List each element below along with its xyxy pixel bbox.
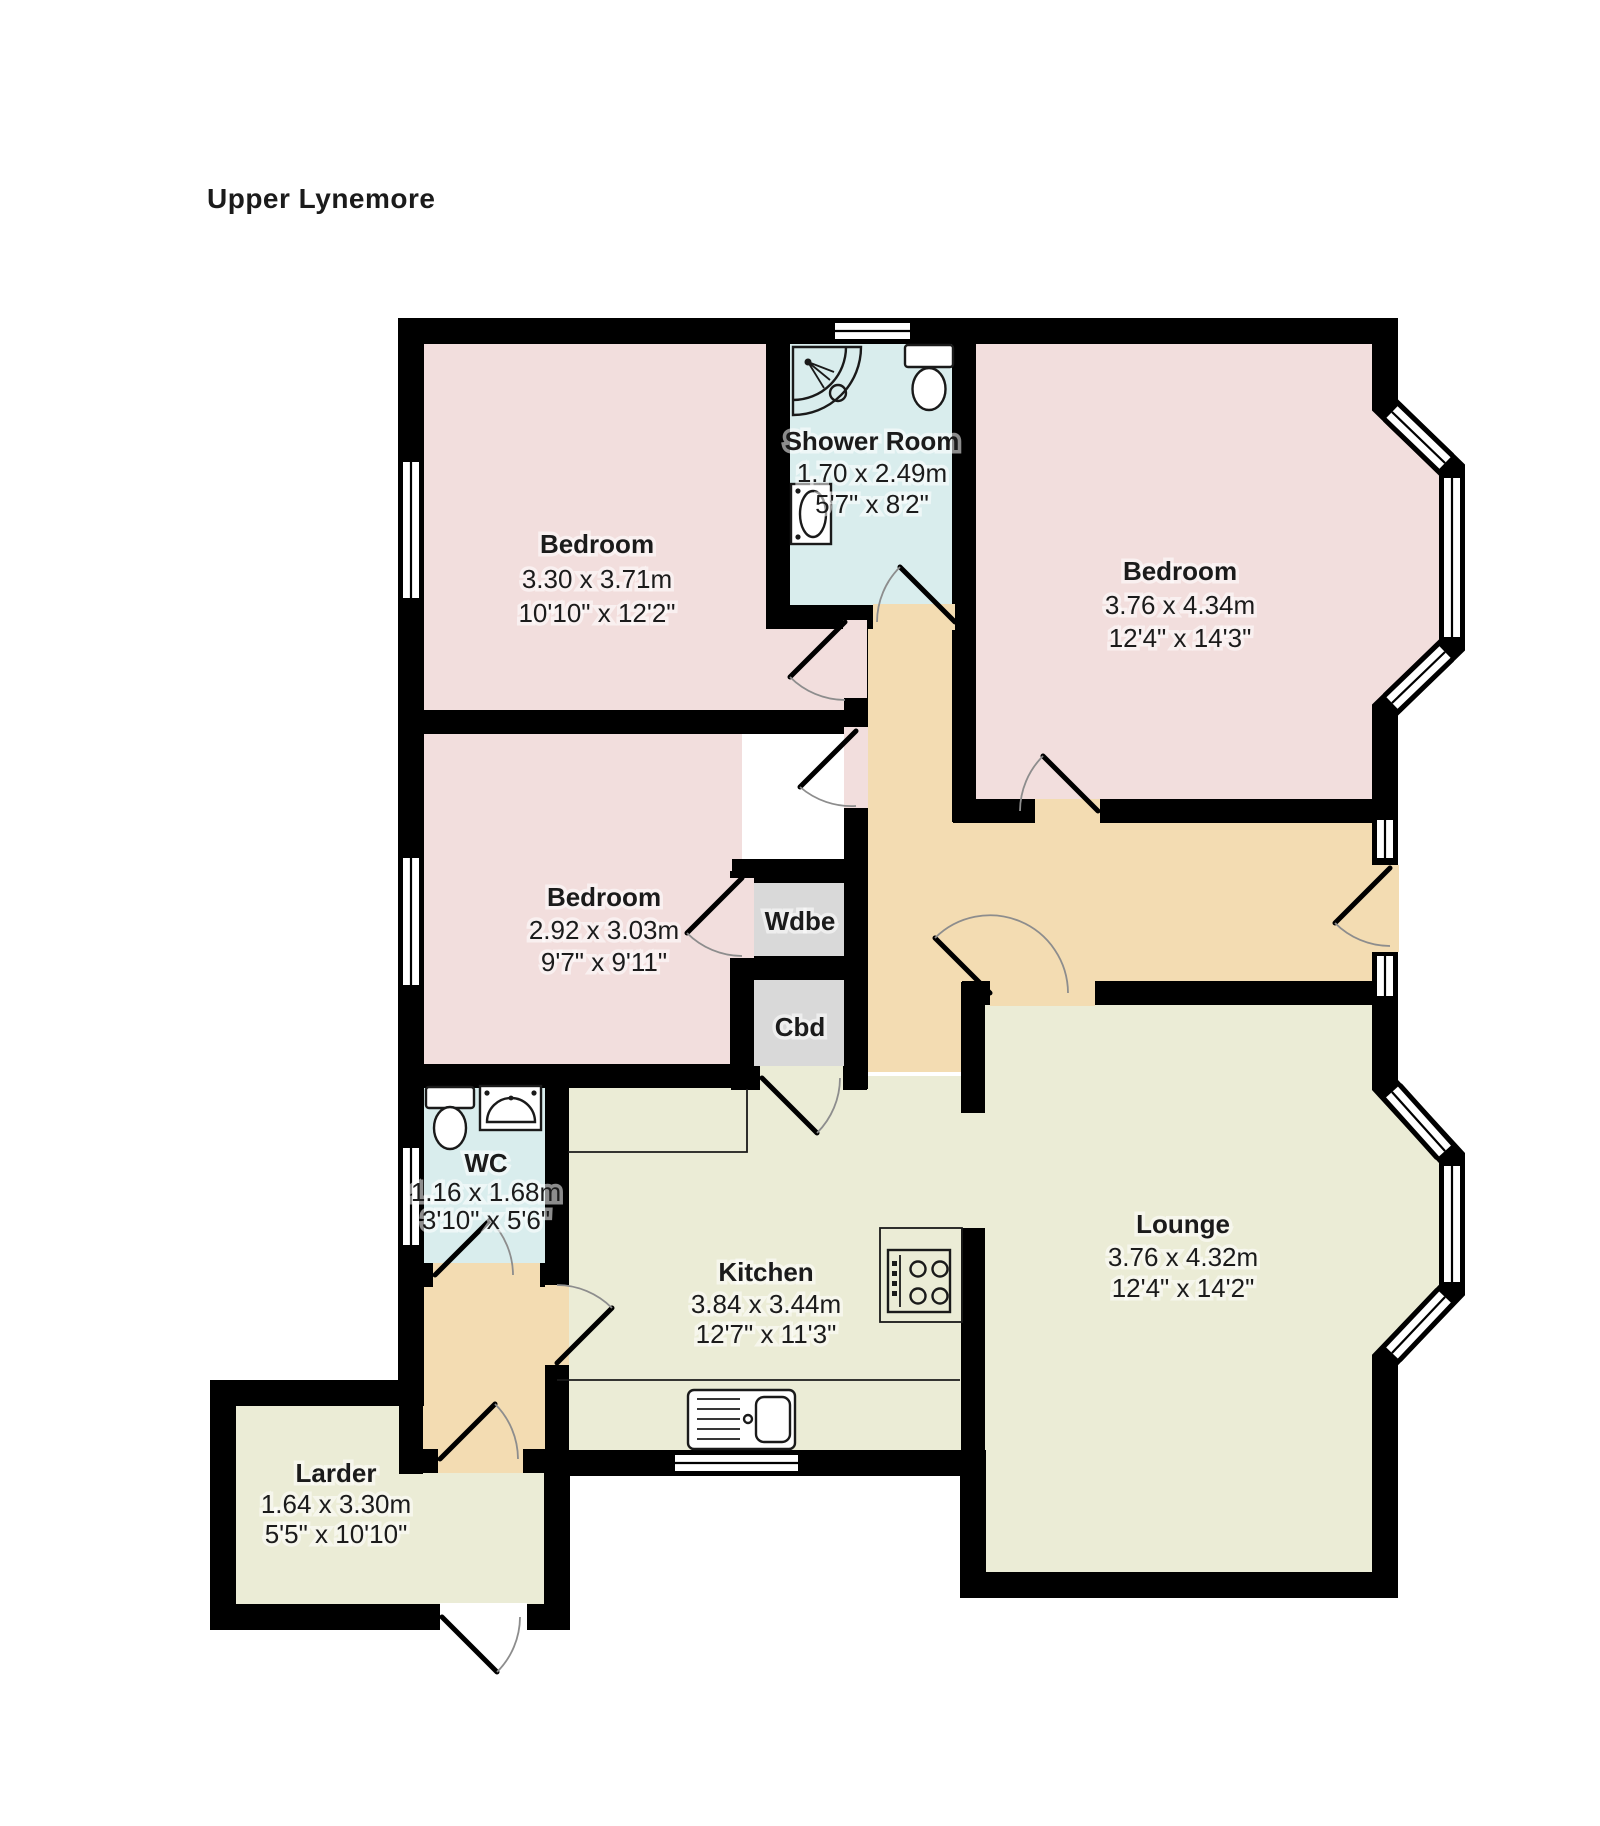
room-dims-metric: 1.70 x 2.49m [797, 458, 947, 488]
floor-plan: Bedroom 3.30 x 3.71m 10'10" x 12'2" Show… [0, 0, 1600, 1826]
hallway-floor [953, 811, 1385, 993]
room-label-larder: Larder [296, 1458, 377, 1488]
lobby-floor [411, 1275, 557, 1461]
room-label-cupboard: Cbd [775, 1012, 826, 1042]
room-dims-imperial: 12'7" x 11'3" [696, 1319, 837, 1349]
room-dims-metric: 2.92 x 3.03m [529, 915, 679, 945]
room-dims-metric: 3.30 x 3.71m [522, 564, 672, 594]
room-label-lounge: Lounge [1136, 1209, 1230, 1239]
room-dims-metric: 3.76 x 4.34m [1105, 590, 1255, 620]
room-dims-metric: 3.76 x 4.32m [1108, 1242, 1258, 1272]
room-dims-imperial: 9'7" x 9'11" [541, 947, 667, 977]
room-label-wardrobe: Wdbe [765, 906, 836, 936]
room-label-bedroom-3: Bedroom [547, 882, 661, 912]
room-label-bedroom-1: Bedroom [540, 529, 654, 559]
floorplan-page: Upper Lynemore [0, 0, 1600, 1826]
room-dims-metric: 3.84 x 3.44m [691, 1289, 841, 1319]
room-dims-imperial: 12'4" x 14'3" [1109, 623, 1252, 653]
room-dims-imperial: 12'4" x 14'2" [1112, 1273, 1255, 1303]
sink-icon [480, 1086, 541, 1130]
room-dims-imperial: 5'5" x 10'10" [265, 1519, 408, 1549]
kitchen-sink-icon [688, 1390, 795, 1449]
corridor-floor [856, 617, 964, 1072]
room-dims-imperial: 10'10" x 12'2" [518, 598, 675, 628]
room-dims-imperial: 3'10" x 5'6" [422, 1205, 550, 1235]
room-dims-imperial: 5'7" x 8'2" [815, 489, 929, 519]
room-dims-metric: 1.64 x 3.30m [261, 1489, 411, 1519]
room-label-wc: WC [464, 1148, 508, 1178]
room-label-bedroom-2: Bedroom [1123, 556, 1237, 586]
room-label-shower-room: Shower Room [785, 426, 960, 456]
room-label-kitchen: Kitchen [718, 1257, 813, 1287]
room-dims-metric: 1.16 x 1.68m [411, 1177, 561, 1207]
